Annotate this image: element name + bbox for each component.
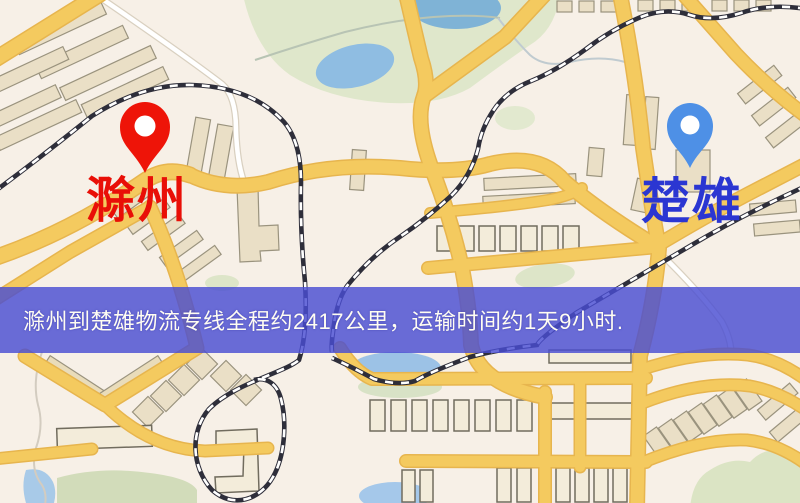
map-background bbox=[0, 0, 800, 503]
origin-city-label: 滁州 bbox=[86, 176, 188, 225]
origin-pin-hole bbox=[135, 116, 156, 137]
map-screenshot: 滁州 楚雄 滁州到楚雄物流专线全程约2417公里，运输时间约1天9小时. bbox=[0, 0, 800, 503]
destination-city-label: 楚雄 bbox=[641, 177, 743, 226]
route-info-text: 滁州到楚雄物流专线全程约2417公里，运输时间约1天9小时. bbox=[23, 304, 624, 336]
route-info-banner: 滁州到楚雄物流专线全程约2417公里，运输时间约1天9小时. bbox=[0, 287, 800, 353]
destination-pin-hole bbox=[681, 116, 700, 135]
